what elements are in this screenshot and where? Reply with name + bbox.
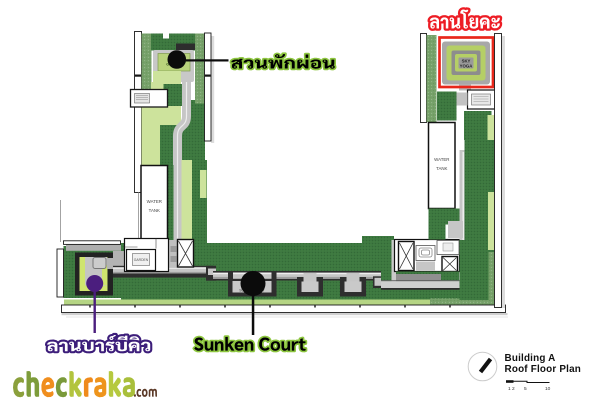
svg-text:GARDEN: GARDEN xyxy=(134,258,149,262)
svg-text:Building A: Building A xyxy=(505,353,556,364)
svg-text:5: 5 xyxy=(524,386,527,392)
svg-text:WATER: WATER xyxy=(147,199,162,204)
svg-text:10: 10 xyxy=(545,386,551,392)
svg-text:TANK: TANK xyxy=(436,166,447,171)
svg-text:Roof Floor Plan: Roof Floor Plan xyxy=(505,364,582,375)
svg-text:YOGA: YOGA xyxy=(460,64,473,69)
svg-text:WATER: WATER xyxy=(434,157,449,162)
svg-text:TANK: TANK xyxy=(149,208,160,213)
svg-text:1 2: 1 2 xyxy=(508,386,515,392)
